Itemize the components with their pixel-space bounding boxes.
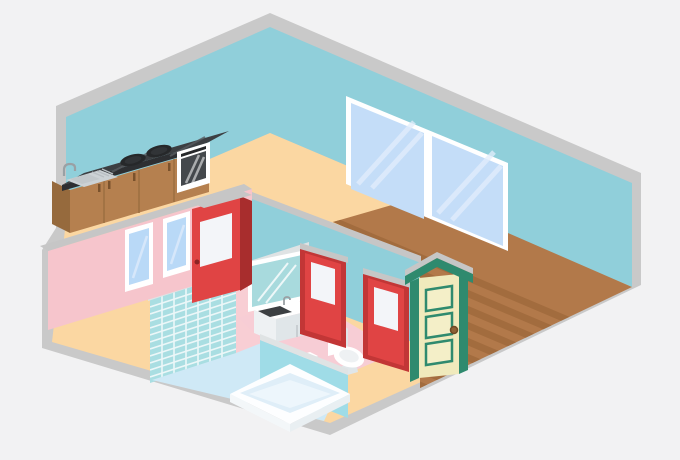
front-wall-window-1 [125,222,153,292]
entry-door-frame-left [410,278,419,382]
entry-door-panel [426,340,452,365]
cabinet-handle [168,163,171,171]
cabinet-handle [98,184,101,192]
toilet-door [300,243,348,348]
entry-door-panel [426,313,452,338]
entry-door-panel [426,286,452,311]
cabinet-handle [108,181,111,189]
cabinet-handle [133,173,136,181]
bathroom-door-knob [195,260,200,265]
apartment-svg [0,0,680,460]
bathroom-door-panel [200,213,232,267]
apartment-illustration [0,0,680,460]
entry-door-frame-right [459,274,468,374]
front-wall-window-2 [163,211,190,278]
entry-door-panels [426,286,452,365]
bathroom-door [192,190,252,303]
hall-door-panel [374,287,398,331]
hall-door [363,268,411,372]
entry-door-knob [451,327,458,334]
bathroom-door-side [240,196,252,291]
toilet-door-panel [311,262,335,305]
